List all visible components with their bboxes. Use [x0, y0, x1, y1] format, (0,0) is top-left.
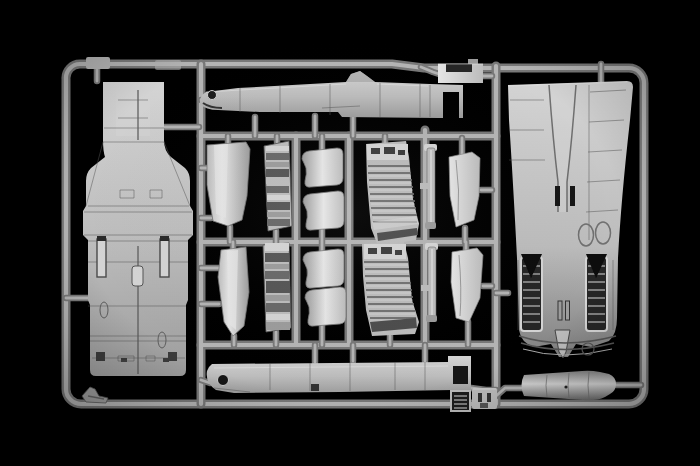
sprue-photo: [0, 0, 700, 466]
photo-vignette: [0, 0, 700, 466]
photo-canvas: [0, 0, 700, 466]
